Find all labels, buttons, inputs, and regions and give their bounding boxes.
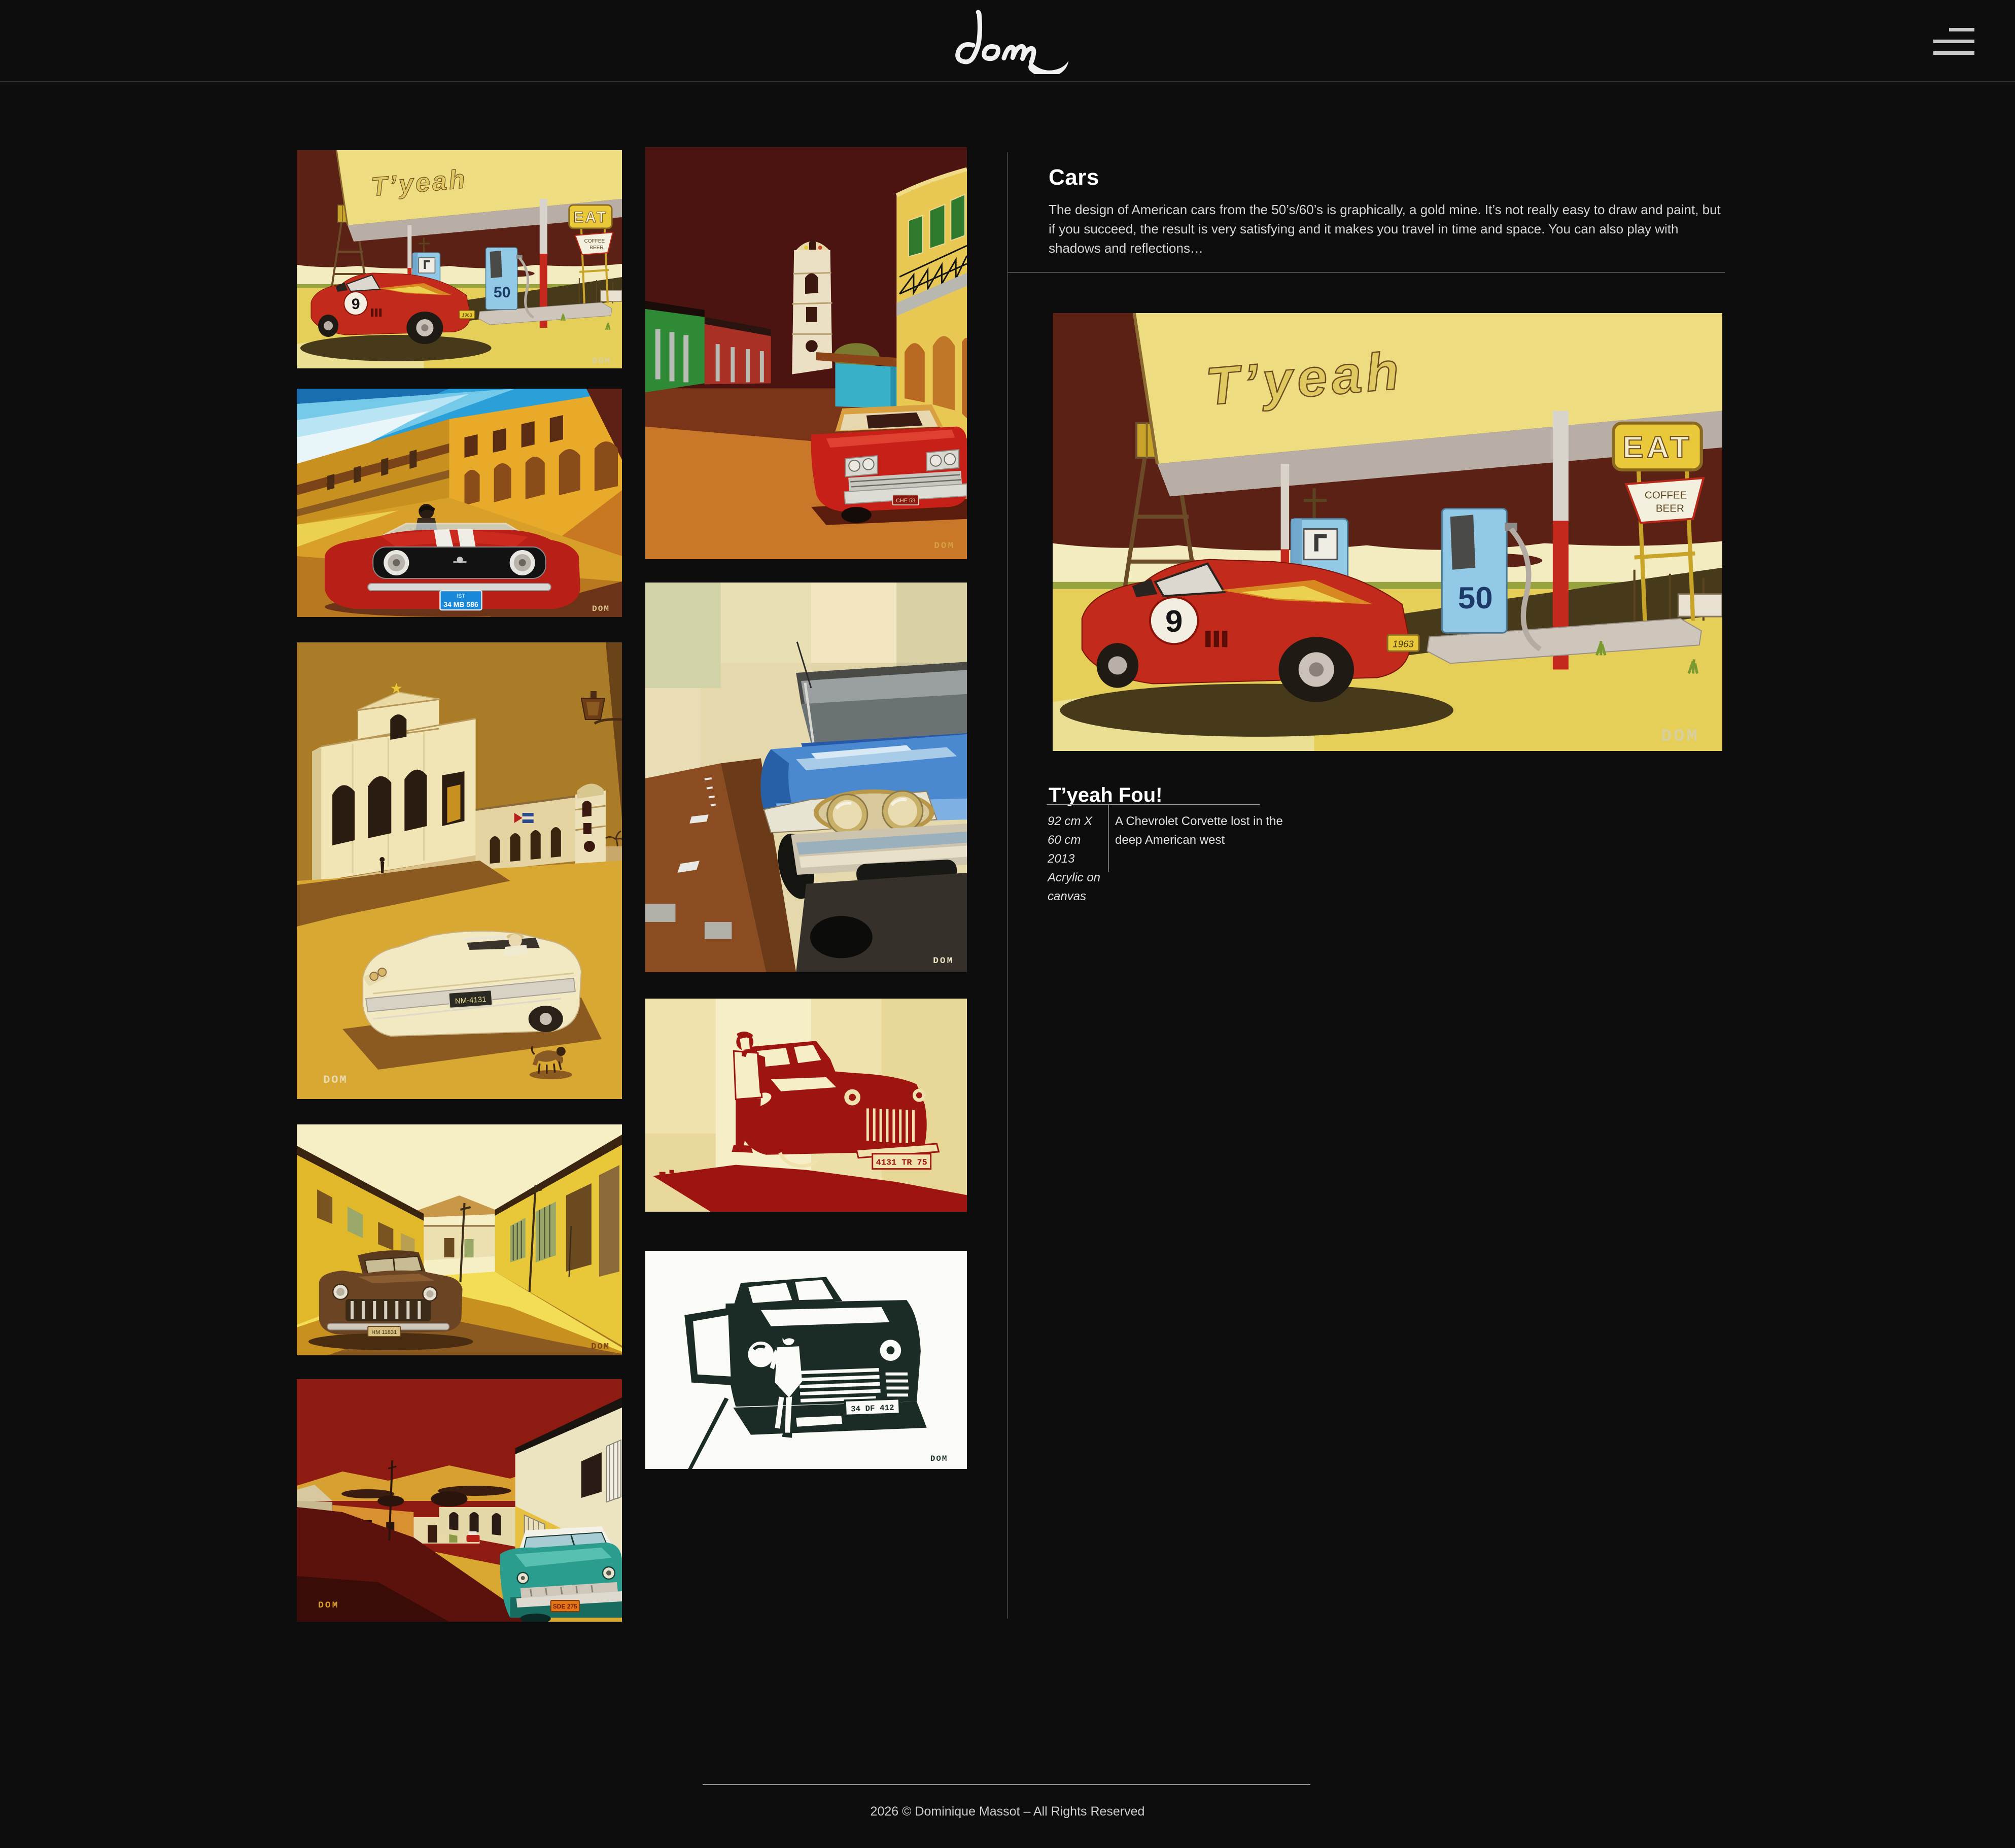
- artwork-size: 92 cm X 60 cm: [1048, 812, 1102, 849]
- header: [0, 0, 2015, 82]
- page: Cars The design of American cars from th…: [0, 0, 2015, 1848]
- hamburger-bar: [1933, 40, 1974, 43]
- featured-painting-gas-station[interactable]: [1053, 313, 1722, 751]
- hamburger-menu-icon[interactable]: [1933, 28, 1974, 55]
- copyright-text: 2026 © Dominique Massot – All Rights Res…: [602, 1804, 1413, 1819]
- section-divider: [1007, 272, 1725, 273]
- painting-thumb-yellow-street[interactable]: [297, 1124, 622, 1355]
- artwork-meta-divider: [1047, 804, 1260, 805]
- column-divider: [1007, 152, 1008, 1619]
- footer-divider: [703, 1784, 1310, 1785]
- painting-thumb-mustang[interactable]: [297, 389, 622, 617]
- hamburger-bar: [1933, 51, 1974, 55]
- artwork-meta-vertical-divider: [1108, 805, 1109, 872]
- painting-thumb-bw-stencil[interactable]: [645, 1251, 967, 1469]
- page-title: Cars: [1049, 165, 1099, 190]
- painting-thumb-red-stencil[interactable]: [645, 999, 967, 1212]
- painting-thumb-gas-station[interactable]: [297, 150, 622, 368]
- category-description: The design of American cars from the 50’…: [1049, 200, 1726, 258]
- hamburger-bar: [1949, 28, 1974, 31]
- painting-thumb-church-plaza[interactable]: [297, 642, 622, 1099]
- artwork-year: 2013: [1048, 849, 1102, 868]
- painting-thumb-blue-car[interactable]: [645, 583, 967, 972]
- painting-thumb-red-sky-street[interactable]: [297, 1379, 622, 1622]
- logo-dom[interactable]: [942, 7, 1068, 74]
- artwork-caption: A Chevrolet Corvette lost in the deep Am…: [1115, 812, 1303, 849]
- artwork-medium: Acrylic on canvas: [1048, 868, 1102, 906]
- painting-thumb-trinidad-arcades[interactable]: [645, 147, 967, 559]
- artwork-details: 92 cm X 60 cm 2013 Acrylic on canvas: [1048, 812, 1102, 906]
